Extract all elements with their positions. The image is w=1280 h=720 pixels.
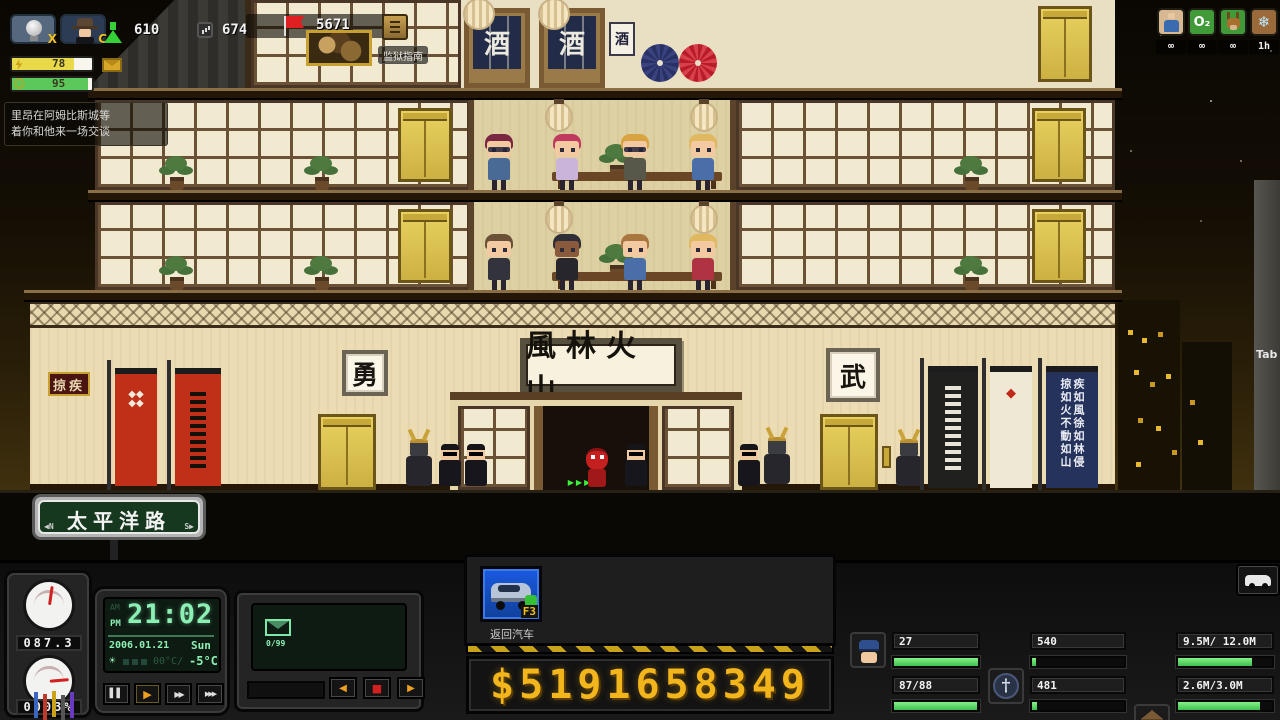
sunglasses bbox=[469, 452, 483, 456]
police-icon bbox=[850, 632, 886, 668]
fastest-forward-button[interactable]: ▶▶▶ bbox=[196, 683, 224, 705]
legs bbox=[492, 280, 497, 290]
bodyguard-npc[interactable] bbox=[735, 442, 763, 490]
mail-icon bbox=[265, 619, 291, 636]
odometer: 087.3 bbox=[16, 635, 82, 651]
blue-umbrella bbox=[641, 44, 679, 82]
avatar-badge: X bbox=[48, 32, 57, 46]
bonsai bbox=[155, 256, 199, 290]
cbody bbox=[692, 258, 714, 280]
motto-text: 疾如風徐如林侵 掠如火不動如山 bbox=[1059, 378, 1085, 488]
flag-pole bbox=[284, 16, 286, 36]
notification-line2: 着你和他来一场交谈 bbox=[11, 124, 161, 140]
plaque-text: 掠疾 bbox=[53, 375, 85, 394]
mini-car-wheels bbox=[1249, 583, 1255, 589]
clock-screen: AM PM 21:02 2006.01.21 Sun ☀ 00°C/ -5°C bbox=[103, 597, 221, 673]
city-building bbox=[1182, 342, 1232, 490]
martial-calligraphy: 武 bbox=[826, 348, 880, 402]
cbody bbox=[624, 158, 646, 180]
storehouse-bar-fill bbox=[1178, 702, 1260, 710]
elevator[interactable] bbox=[1032, 108, 1086, 182]
bulb-base bbox=[30, 36, 38, 41]
money-value: $5191658349 bbox=[490, 662, 810, 708]
temp-now: -5°C bbox=[189, 654, 218, 668]
glasses bbox=[488, 147, 510, 152]
stats-grid: 27 † 540 9.5M/ 12.0M 87/88 481 bbox=[850, 632, 1274, 716]
church-count: 540 bbox=[1030, 632, 1126, 650]
floor-divider bbox=[88, 190, 1122, 202]
horn bbox=[898, 429, 907, 442]
flask-count: 610 bbox=[134, 22, 159, 38]
lantern bbox=[690, 204, 718, 234]
bodyguard-npc[interactable] bbox=[436, 442, 464, 490]
character[interactable] bbox=[686, 234, 720, 290]
elevator[interactable] bbox=[318, 414, 376, 490]
eyes bbox=[696, 248, 700, 252]
horn bbox=[780, 427, 789, 440]
legs bbox=[560, 280, 565, 290]
pillar bbox=[468, 202, 474, 290]
character[interactable] bbox=[550, 234, 584, 290]
deer-icon[interactable] bbox=[1219, 8, 1247, 36]
storehouse-capacity: 2.6M/3.0M bbox=[1176, 676, 1274, 694]
cbody bbox=[692, 158, 714, 180]
clock-device: AM PM 21:02 2006.01.21 Sun ☀ 00°C/ -5°C … bbox=[92, 586, 230, 716]
motto-column-left: 掠如火不動如山 bbox=[1059, 378, 1072, 469]
flask-icon bbox=[104, 30, 122, 43]
play-button[interactable]: ▶ bbox=[134, 683, 161, 705]
prev-glyph: ◀ bbox=[339, 683, 347, 694]
skull-bar-fill bbox=[1032, 702, 1037, 710]
diamond-crest: ◆◆◆◆ bbox=[115, 390, 157, 408]
weather-dim-icons bbox=[123, 659, 129, 665]
main-sign: 風林火山 bbox=[520, 338, 682, 392]
signal-bars bbox=[202, 30, 204, 34]
pager-screen: 0/99 bbox=[251, 603, 407, 671]
agent-hat-crown bbox=[77, 18, 93, 26]
face bbox=[623, 241, 647, 257]
warehouse-bar-fill bbox=[1178, 658, 1252, 666]
suit-head bbox=[1168, 13, 1175, 19]
black-banner-centipede bbox=[928, 366, 978, 488]
floor-divider bbox=[88, 88, 1122, 100]
return-car-button[interactable]: F3 bbox=[480, 566, 542, 622]
clock-date: 2006.01.21 bbox=[109, 640, 169, 651]
elevator[interactable] bbox=[398, 209, 452, 283]
building-ground-floor: 掠疾 ◆◆◆◆ 勇 風林火山 ▶▶▶ 武 bbox=[30, 328, 1115, 490]
prisoner-count: 87/88 bbox=[892, 676, 980, 694]
sake-character: 酒 bbox=[559, 24, 585, 61]
legs bbox=[696, 180, 701, 190]
face bbox=[555, 241, 579, 257]
eyes bbox=[628, 248, 632, 252]
temp-dim: 00°C/ bbox=[153, 656, 183, 667]
clock-time: 21:02 bbox=[127, 599, 213, 630]
f3-key-badge: F3 bbox=[521, 605, 538, 618]
centipede-motif bbox=[945, 386, 961, 474]
pager-stop-button[interactable]: ■ bbox=[363, 677, 391, 699]
sake-wall-sign: 酒 bbox=[609, 22, 635, 56]
centipede-motif bbox=[190, 388, 206, 472]
valor-calligraphy: 勇 bbox=[342, 350, 388, 396]
character[interactable] bbox=[618, 234, 652, 290]
bonsai bbox=[950, 256, 994, 290]
legs bbox=[628, 180, 633, 190]
agent-avatar-button[interactable]: C bbox=[60, 14, 106, 44]
banner-pole bbox=[167, 360, 171, 496]
guide-button-marks bbox=[390, 21, 400, 23]
play-glyph: ▶ bbox=[143, 688, 151, 701]
suit-status-value: ∞ bbox=[1156, 40, 1186, 54]
game-screen: Tab 酒 酒 酒 bbox=[0, 0, 1280, 720]
motto-column-right: 疾如風徐如林侵 bbox=[1072, 378, 1085, 469]
pager-mail-count: 0/99 bbox=[266, 639, 285, 648]
bulb-icon bbox=[26, 20, 42, 36]
banner-pole bbox=[982, 358, 986, 494]
prisoner-bar-fill bbox=[894, 702, 977, 710]
floor-divider bbox=[24, 290, 1122, 302]
pillar bbox=[730, 202, 736, 290]
face bbox=[555, 141, 579, 157]
sunglasses bbox=[443, 452, 457, 456]
street-name: 太平洋路 bbox=[40, 505, 198, 534]
lantern bbox=[545, 204, 573, 234]
church-bar-fill bbox=[1032, 658, 1036, 666]
gauge-needle bbox=[49, 678, 69, 683]
cop-face bbox=[861, 652, 877, 663]
pager-device: 0/99 ◀ ■ ▶ bbox=[234, 590, 424, 712]
mail-icon[interactable] bbox=[102, 58, 122, 72]
building-floor-3 bbox=[95, 202, 1115, 290]
red-banner-crest: ◆◆◆◆ bbox=[115, 368, 157, 486]
notification-line1: 里昂在阿姆比斯城等 bbox=[11, 108, 161, 124]
pause-button[interactable]: ▌▌ bbox=[103, 683, 130, 705]
elevator[interactable] bbox=[820, 414, 878, 490]
car-window bbox=[498, 585, 520, 592]
storehouse-bar bbox=[1176, 700, 1274, 712]
skull-bar bbox=[1030, 700, 1126, 712]
smiley-icon: ☺ bbox=[13, 77, 26, 91]
lantern bbox=[545, 102, 573, 132]
guide-label: 监狱指南 bbox=[378, 46, 428, 64]
white-banner-crest: ◆ bbox=[990, 366, 1032, 488]
adjacent-roof bbox=[88, 0, 245, 88]
cop-cap bbox=[859, 640, 879, 651]
agent-face bbox=[79, 29, 91, 37]
red-umbrella bbox=[679, 44, 717, 82]
character[interactable] bbox=[686, 134, 720, 190]
street-sign-face: 太平洋路 ◀N S▶ bbox=[38, 500, 200, 534]
hazard-stripe bbox=[466, 644, 834, 654]
sunglasses bbox=[742, 452, 756, 456]
street-sign-south: S▶ bbox=[184, 522, 194, 531]
eyes bbox=[560, 248, 564, 252]
character[interactable] bbox=[618, 134, 652, 190]
bonsai bbox=[300, 156, 344, 190]
fff-glyph: ▶▶▶ bbox=[205, 690, 215, 698]
dashboard-wires bbox=[34, 692, 38, 718]
snowflake-glyph: ❄ bbox=[1258, 13, 1271, 31]
street-sign-north: ◀N bbox=[44, 522, 54, 531]
energy-value: 78 bbox=[52, 58, 65, 70]
suit-icon[interactable] bbox=[1157, 8, 1185, 36]
elevator-call-panel[interactable] bbox=[882, 446, 891, 468]
bonsai bbox=[950, 156, 994, 190]
glasses bbox=[624, 147, 646, 152]
mail-flap bbox=[104, 60, 120, 66]
red-banner-centipede bbox=[175, 368, 221, 486]
car-wheels bbox=[496, 601, 505, 610]
gauge-needle bbox=[48, 586, 54, 606]
pillar bbox=[468, 100, 474, 190]
floor3-characters bbox=[482, 234, 720, 290]
suit-body bbox=[1164, 20, 1179, 32]
mail-flap-line bbox=[267, 621, 289, 629]
eyes bbox=[560, 148, 564, 152]
warehouse-bar bbox=[1176, 656, 1274, 668]
cbody bbox=[488, 158, 510, 180]
elevator[interactable] bbox=[1032, 209, 1086, 283]
fast-forward-button[interactable]: ▶▶ bbox=[165, 683, 192, 705]
lantern bbox=[690, 102, 718, 132]
pillar bbox=[730, 100, 736, 190]
ff-glyph: ▶▶ bbox=[174, 690, 182, 699]
speed-gauge bbox=[23, 579, 75, 631]
flask-neck bbox=[110, 22, 116, 30]
legs bbox=[696, 280, 701, 290]
eyes bbox=[591, 455, 595, 459]
samurai-armor-stand bbox=[404, 432, 434, 490]
deer-status-value: ∞ bbox=[1218, 40, 1248, 54]
gauge-cluster: 087.3 0003% bbox=[4, 570, 92, 718]
street-sign: 太平洋路 ◀N S▶ bbox=[32, 494, 206, 540]
o2-icon[interactable]: O₂ bbox=[1188, 8, 1216, 36]
warehouse-roof bbox=[1141, 710, 1163, 719]
cbody bbox=[556, 158, 578, 180]
prisoner-bar bbox=[892, 700, 980, 712]
skull-count: 481 bbox=[1030, 676, 1126, 694]
sun-icon: ☀ bbox=[109, 654, 116, 667]
oni-npc[interactable] bbox=[582, 446, 612, 490]
stop-glyph: ■ bbox=[372, 682, 382, 695]
church-bar bbox=[1030, 656, 1126, 668]
phone-icon bbox=[197, 22, 213, 38]
money-panel: $5191658349 bbox=[466, 656, 834, 714]
deer-muzzle bbox=[1230, 25, 1237, 30]
entrance-shoji bbox=[662, 406, 734, 490]
snowflake-status-value: 1h bbox=[1249, 40, 1279, 54]
martial-character: 武 bbox=[840, 357, 866, 394]
am-indicator: AM bbox=[110, 603, 120, 612]
car-icon-button[interactable] bbox=[1236, 564, 1280, 596]
banner-pole bbox=[1038, 358, 1042, 494]
mood-value: 95 bbox=[52, 78, 65, 90]
legs bbox=[560, 180, 565, 190]
horn bbox=[766, 427, 775, 440]
tab-key-hint: Tab bbox=[1256, 348, 1280, 361]
o2-glyph: O₂ bbox=[1194, 15, 1211, 30]
guide-label-text: 监狱指南 bbox=[383, 52, 423, 63]
o2-status-value: ∞ bbox=[1187, 40, 1217, 54]
character[interactable] bbox=[550, 134, 584, 190]
building-floor-2 bbox=[95, 100, 1115, 190]
face bbox=[691, 241, 715, 257]
pager-next-button[interactable]: ▶ bbox=[397, 677, 425, 699]
church-icon: † bbox=[988, 668, 1024, 704]
painting[interactable] bbox=[306, 30, 372, 66]
mini-car-icon bbox=[1245, 575, 1271, 586]
character[interactable] bbox=[482, 134, 516, 190]
agent-suit bbox=[76, 37, 94, 44]
bodyguard-npc[interactable] bbox=[622, 442, 650, 490]
pause-glyph: ▌▌ bbox=[110, 689, 124, 699]
horn bbox=[422, 429, 431, 442]
elevator[interactable] bbox=[1038, 6, 1092, 82]
notification-toast[interactable]: 里昂在阿姆比斯城等 着你和他来一场交谈 bbox=[4, 102, 168, 146]
warehouse-capacity: 9.5M/ 12.0M bbox=[1176, 632, 1274, 650]
idea-avatar-button[interactable]: X bbox=[10, 14, 56, 44]
fuel-readout: 0003% bbox=[16, 699, 82, 715]
snowflake-icon[interactable]: ❄ bbox=[1250, 8, 1278, 36]
eyes bbox=[696, 148, 700, 152]
next-glyph: ▶ bbox=[407, 683, 415, 694]
pager-slot bbox=[247, 681, 325, 699]
banner-pole bbox=[920, 358, 924, 494]
wall-plaque: 掠疾 bbox=[48, 372, 90, 396]
city-windows bbox=[1128, 330, 1133, 335]
energy-bar: 78 bbox=[10, 56, 94, 72]
legs bbox=[492, 180, 497, 190]
clock-day: Sun bbox=[191, 639, 211, 652]
cbody bbox=[556, 258, 578, 280]
bonsai bbox=[155, 156, 199, 190]
warehouse-icon bbox=[1134, 704, 1170, 720]
pager-prev-button[interactable]: ◀ bbox=[329, 677, 357, 699]
sake-character: 酒 bbox=[615, 29, 629, 49]
face bbox=[487, 241, 511, 257]
bonsai bbox=[300, 256, 344, 290]
valor-character: 勇 bbox=[352, 355, 378, 392]
cbody bbox=[624, 258, 646, 280]
pm-indicator: PM bbox=[110, 619, 121, 629]
police-count: 27 bbox=[892, 632, 980, 650]
character[interactable] bbox=[482, 234, 516, 290]
cbody bbox=[488, 258, 510, 280]
city-building bbox=[1118, 300, 1180, 490]
blue-banner-motto: 疾如風徐如林侵 掠如火不動如山 bbox=[1046, 366, 1098, 488]
adjacent-wall bbox=[1254, 180, 1280, 490]
samurai-armor-stand bbox=[762, 430, 792, 490]
eyes bbox=[492, 248, 496, 252]
return-car-label: 返回汽车 bbox=[474, 626, 550, 642]
floor2-characters bbox=[482, 134, 720, 190]
elevator[interactable] bbox=[398, 108, 452, 182]
sake-character: 酒 bbox=[484, 24, 510, 61]
police-bar-fill bbox=[894, 658, 978, 666]
bodyguard-npc[interactable] bbox=[462, 442, 490, 490]
church-badge: † bbox=[993, 673, 1019, 699]
face bbox=[691, 141, 715, 157]
police-bar bbox=[892, 656, 980, 668]
sunglasses bbox=[629, 452, 643, 456]
legs bbox=[628, 280, 633, 290]
banner-pole bbox=[107, 360, 111, 496]
diamond-crest: ◆ bbox=[990, 386, 1032, 401]
guide-button[interactable] bbox=[382, 14, 408, 40]
mood-bar: ☺ 95 bbox=[10, 76, 94, 92]
horn bbox=[408, 429, 417, 442]
phone-count: 674 bbox=[222, 22, 247, 38]
lcd-divider bbox=[108, 635, 214, 637]
